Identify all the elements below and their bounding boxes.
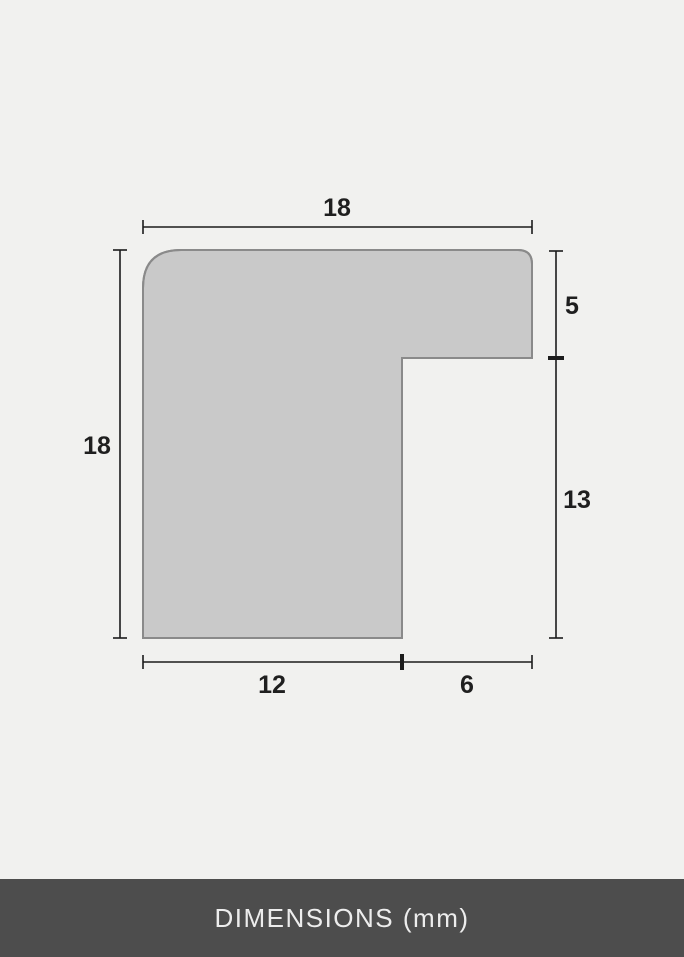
- left-dimension-line: [113, 250, 127, 638]
- frame-profile-diagram: 18 18 5 13 12 6: [0, 0, 684, 879]
- dimension-label-face-width: 12: [258, 671, 286, 699]
- diagram-canvas: 18 18 5 13 12 6: [0, 0, 684, 879]
- dimension-label-inner-width: 6: [460, 671, 474, 699]
- dimension-label-lip-height: 5: [565, 292, 579, 320]
- dimension-label-total-width: 18: [323, 194, 351, 222]
- frame-profile-shape: [143, 250, 532, 638]
- page: 18 18 5 13 12 6 DIMENSIONS (mm): [0, 0, 684, 957]
- bottom-dimension-line: [143, 654, 532, 670]
- top-dimension-line: [143, 220, 532, 234]
- dimension-label-rabbet-depth: 13: [563, 486, 591, 514]
- dimensions-unit-label: DIMENSIONS (mm): [214, 903, 469, 934]
- dimension-label-total-height: 18: [83, 432, 111, 460]
- footer-bar: DIMENSIONS (mm): [0, 879, 684, 957]
- right-dimension-line: [548, 251, 564, 638]
